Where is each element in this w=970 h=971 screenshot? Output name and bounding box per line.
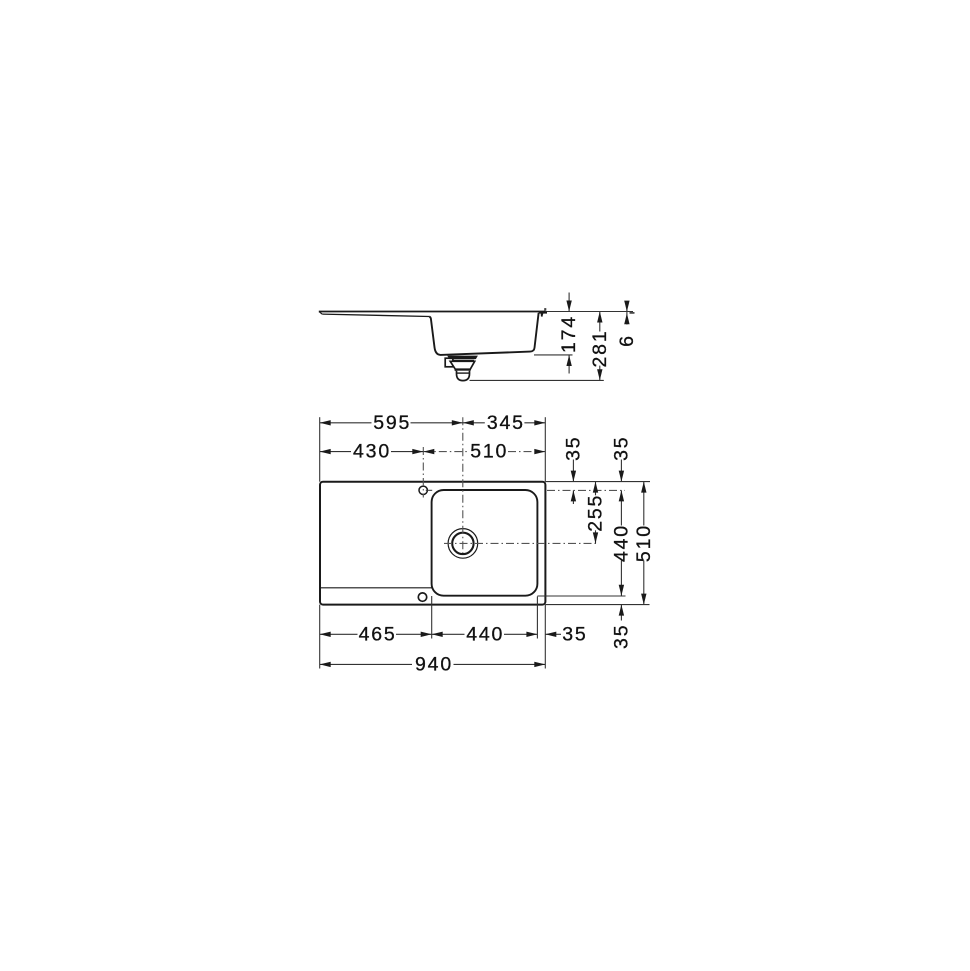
svg-text:35: 35: [610, 436, 632, 461]
svg-text:35: 35: [610, 624, 632, 649]
svg-text:510: 510: [633, 524, 655, 562]
svg-text:345: 345: [487, 412, 525, 434]
svg-text:440: 440: [610, 524, 632, 562]
svg-text:430: 430: [353, 441, 391, 463]
svg-text:510: 510: [470, 441, 508, 463]
svg-text:440: 440: [466, 623, 504, 645]
svg-text:255: 255: [585, 494, 607, 532]
svg-text:595: 595: [373, 412, 411, 434]
svg-text:940: 940: [415, 653, 453, 675]
svg-text:35: 35: [562, 623, 587, 645]
svg-text:281: 281: [589, 330, 611, 368]
svg-text:174: 174: [558, 315, 580, 353]
svg-text:6: 6: [616, 334, 638, 347]
svg-text:465: 465: [359, 623, 397, 645]
svg-text:35: 35: [562, 436, 584, 461]
